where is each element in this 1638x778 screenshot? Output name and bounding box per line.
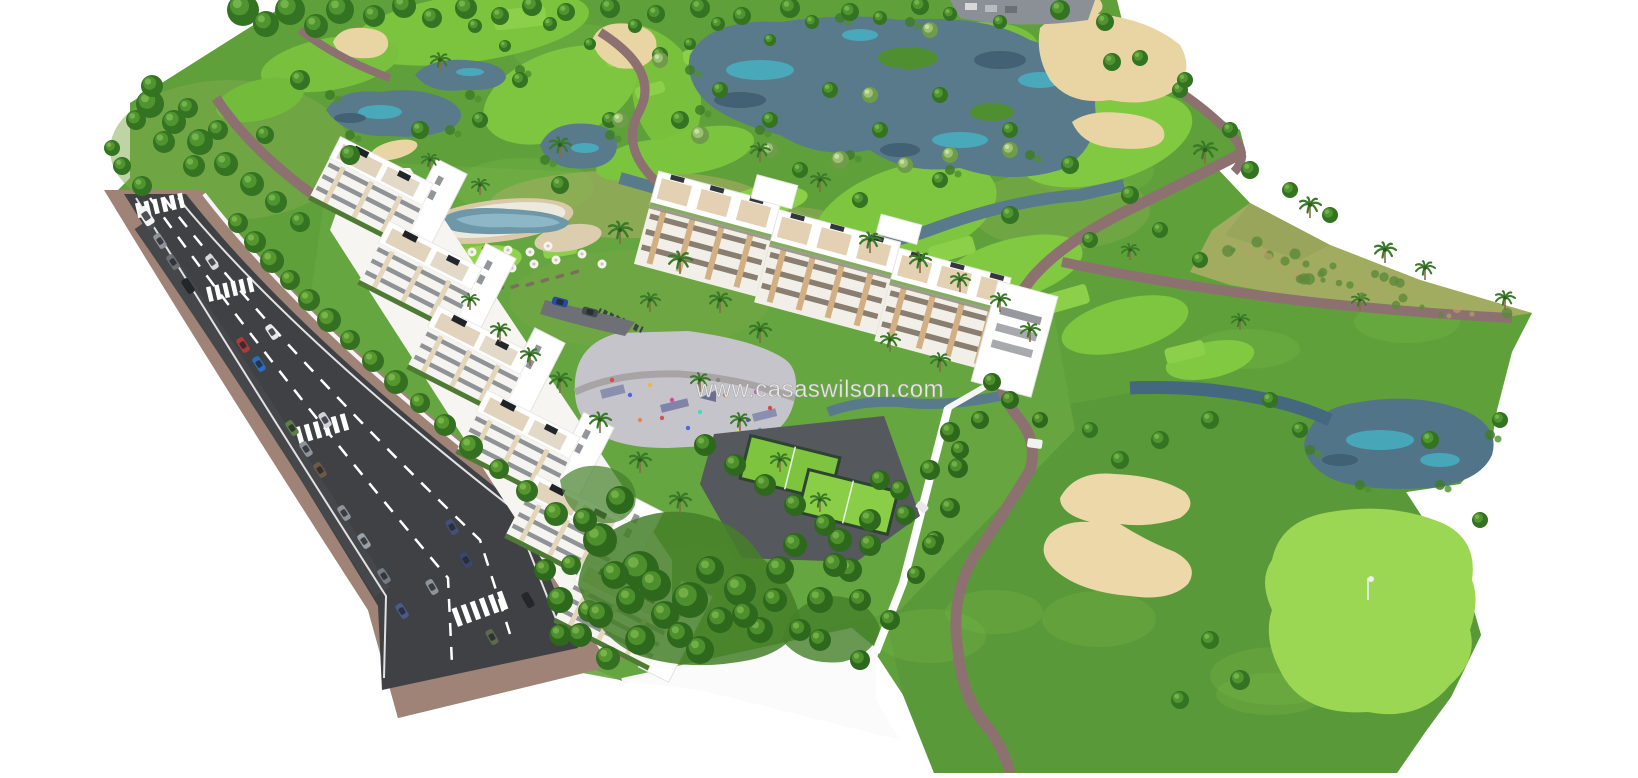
svg-text:www.casaswilson.com: www.casaswilson.com <box>695 376 944 403</box>
